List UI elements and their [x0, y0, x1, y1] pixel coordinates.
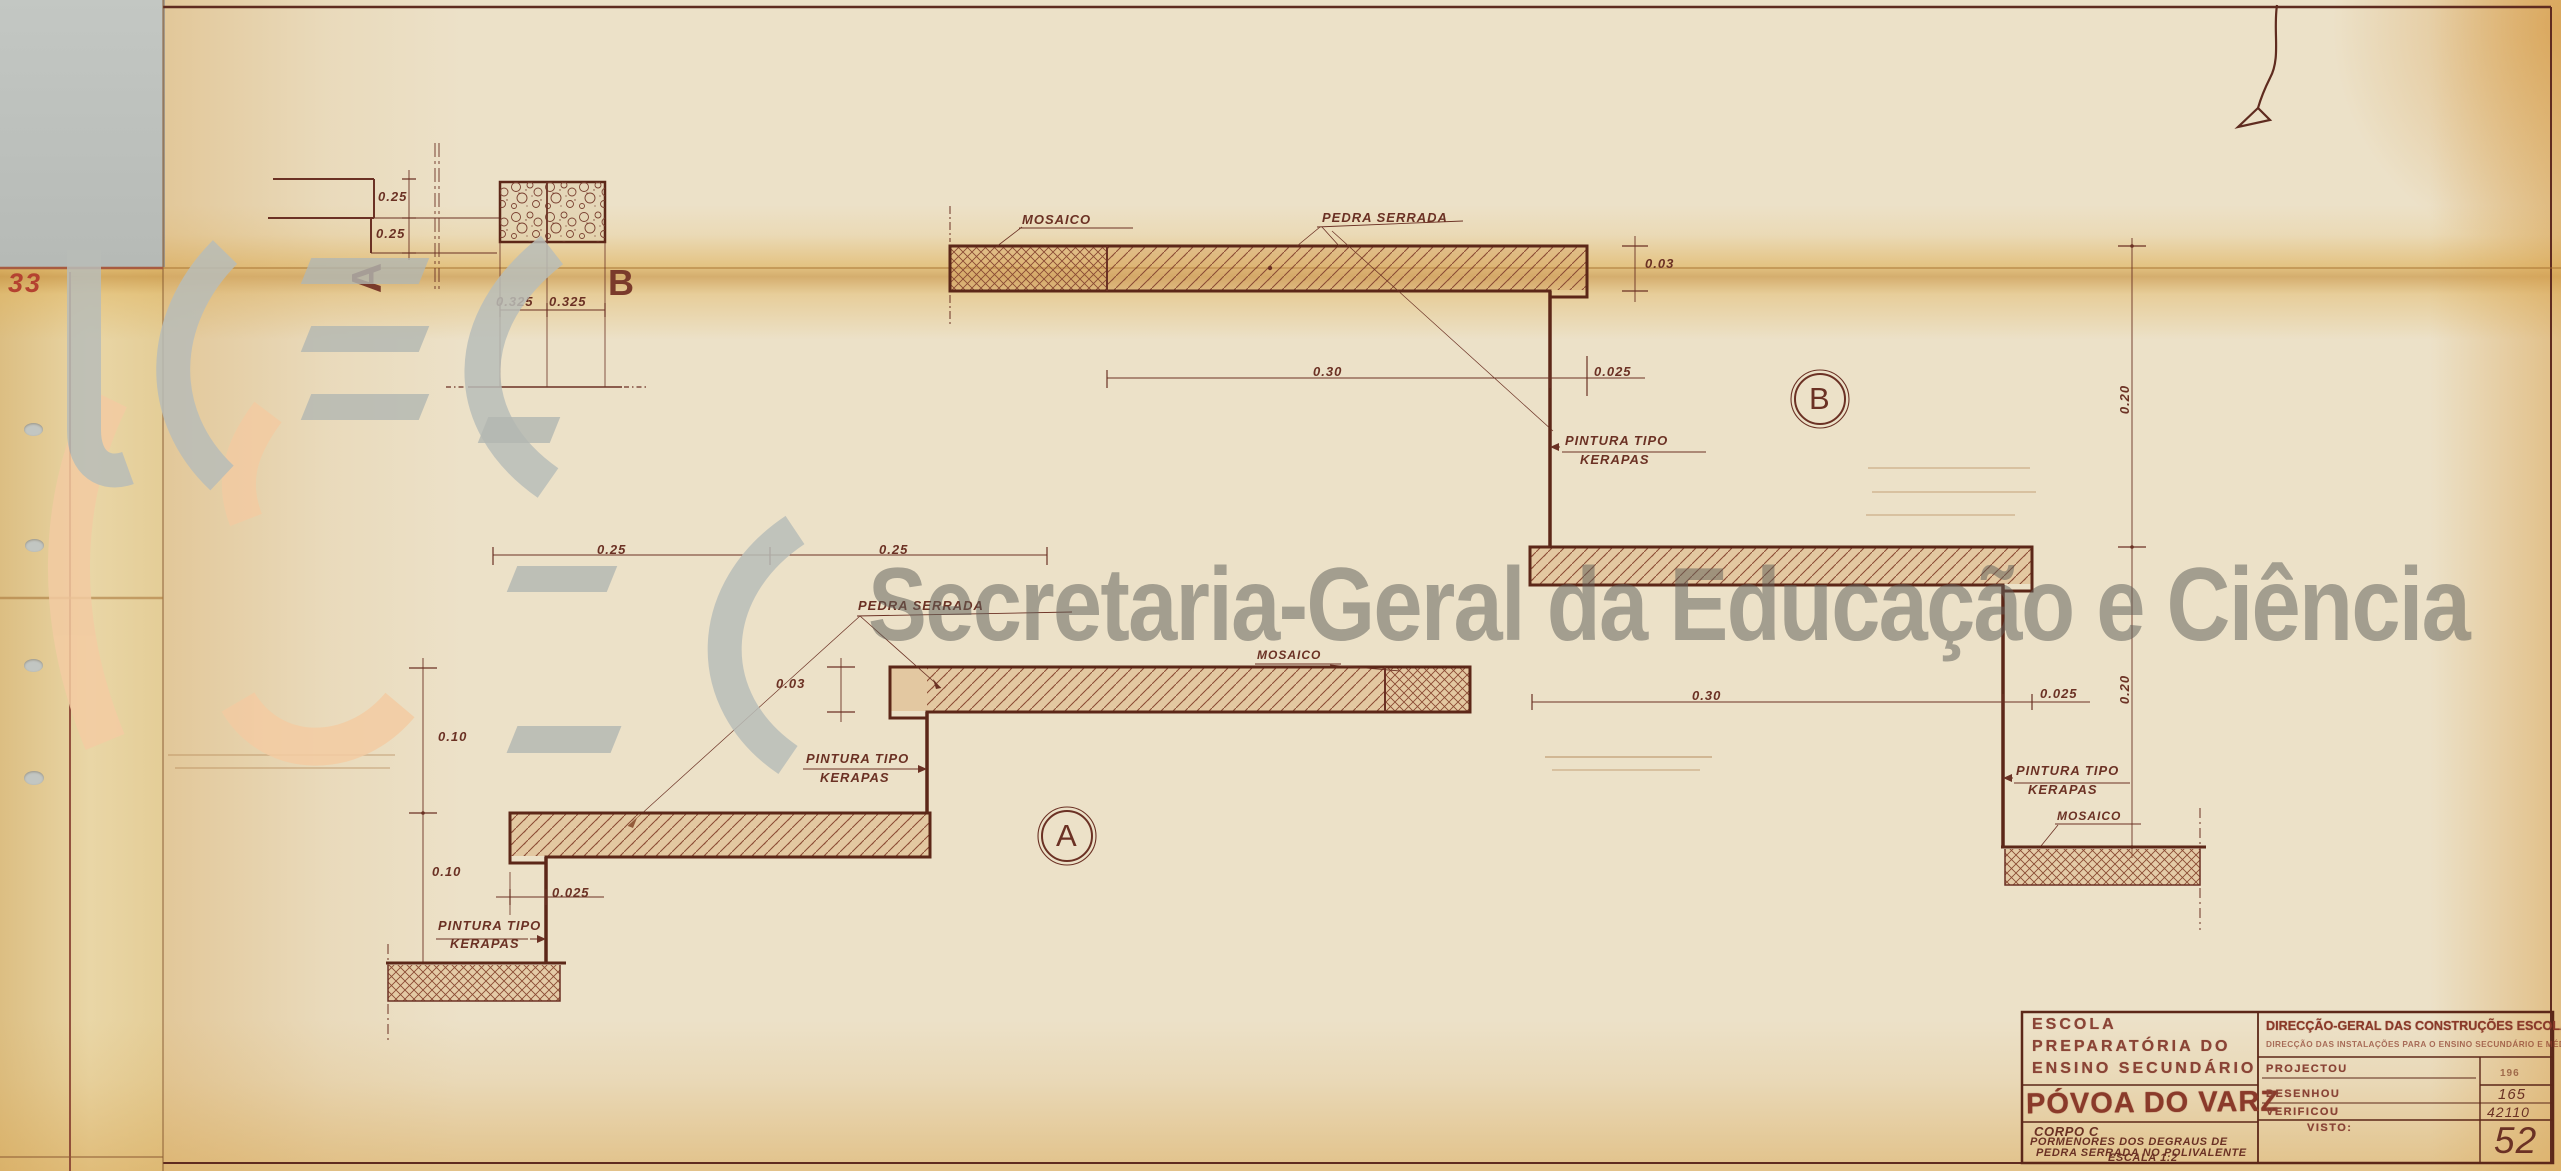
section-a-linework [168, 547, 1470, 1042]
sectiona-dim-riser-2: 0.10 [432, 864, 461, 879]
titleblock-row-verificou: VERIFICOU [2266, 1106, 2339, 1118]
sectionb-mosaico-top-label: MOSAICO [1022, 212, 1091, 227]
plan-dim-tread-2: 0.325 [549, 294, 587, 309]
plan-detail [268, 143, 648, 387]
scanned-drawing-sheet: 33 0.25 0.25 A 0.325 0.325 B MOSAICO PED… [0, 0, 2561, 1171]
sectiona-mosaico-label: MOSAICO [1257, 648, 1321, 662]
drawing-linework [0, 0, 2561, 1171]
sectiona-dim-nosing: 0.025 [552, 885, 590, 900]
sectionb-dim-nosing-1: 0.025 [1594, 364, 1632, 379]
titleblock-row-projectou: PROJECTOU [2266, 1063, 2348, 1075]
sectiona-dim-tread-2: 0.25 [879, 542, 908, 557]
titleblock-row-desenhou: DESENHOU [2266, 1088, 2340, 1100]
plan-label-b: B [608, 262, 634, 304]
sectiona-dim-riser-1: 0.10 [438, 729, 467, 744]
sectionb-mosaico-floor-label: MOSAICO [2057, 809, 2121, 823]
sectiona-dim-thickness: 0.03 [776, 676, 805, 691]
titleblock-row-visto: VISTO: [2307, 1122, 2352, 1134]
pen-scribble [2238, 5, 2277, 127]
plan-dim-tread-1: 0.325 [496, 294, 534, 309]
sectionb-circle-label: B [1809, 381, 1830, 417]
titleblock-school-line1: ESCOLA [2032, 1016, 2117, 1034]
plan-dim-riser-1: 0.25 [378, 189, 407, 204]
titleblock-num-process: 42110 [2487, 1104, 2530, 1120]
titleblock-agency-sub: DIRECÇÃO DAS INSTALAÇÕES PARA O ENSINO S… [2266, 1039, 2561, 1049]
sheet-borders [0, 0, 2561, 1171]
sectionb-pintura1-line2: KERAPAS [1580, 452, 1650, 467]
sectionb-pedra-serrada-label: PEDRA SERRADA [1322, 210, 1448, 225]
sectiona-pintura2-line2: KERAPAS [450, 936, 520, 951]
sectiona-circle-label: A [1056, 818, 1077, 854]
sectionb-dim-nosing-2: 0.025 [2040, 686, 2078, 701]
margin-sheet-number: 33 [8, 268, 42, 299]
titleblock-school-line3: ENSINO SECUNDÁRIO [2032, 1060, 2256, 1078]
titleblock-location-stamp: PÓVOA DO VARZIM [2026, 1086, 2278, 1122]
sectiona-pedra-serrada-label: PEDRA SERRADA [858, 598, 984, 613]
sectiona-pintura2-line1: PINTURA TIPO [438, 918, 541, 933]
sectiona-pintura1-line1: PINTURA TIPO [806, 751, 909, 766]
titleblock-sheet-number: 52 [2494, 1120, 2537, 1162]
sectionb-dim-tread-1: 0.30 [1313, 364, 1342, 379]
section-b-linework [950, 206, 2206, 930]
sectionb-dim-riser-1: 0.20 [2117, 385, 2132, 414]
sectiona-dim-tread-1: 0.25 [597, 542, 626, 557]
titleblock-num-desenhou: 165 [2498, 1086, 2526, 1103]
sectionb-pintura2-line1: PINTURA TIPO [2016, 763, 2119, 778]
sectionb-dim-thickness: 0.03 [1645, 256, 1674, 271]
sectionb-pintura2-line2: KERAPAS [2028, 782, 2098, 797]
titleblock-agency: DIRECÇÃO-GERAL DAS CONSTRUÇÕES ESCOLARES [2266, 1018, 2561, 1033]
titleblock-school-line2: PREPARATÓRIA DO [2032, 1038, 2230, 1056]
titleblock-scale: ESCALA 1:2 [2108, 1152, 2178, 1164]
sectionb-pintura1-line1: PINTURA TIPO [1565, 433, 1668, 448]
sectionb-dim-tread-2: 0.30 [1692, 688, 1721, 703]
plan-dim-riser-2: 0.25 [376, 226, 405, 241]
titleblock-num-printed: 196 [2500, 1068, 2520, 1079]
plan-label-a: A [343, 263, 391, 293]
sectiona-pintura1-line2: KERAPAS [820, 770, 890, 785]
sectionb-dim-riser-2: 0.20 [2117, 675, 2132, 704]
